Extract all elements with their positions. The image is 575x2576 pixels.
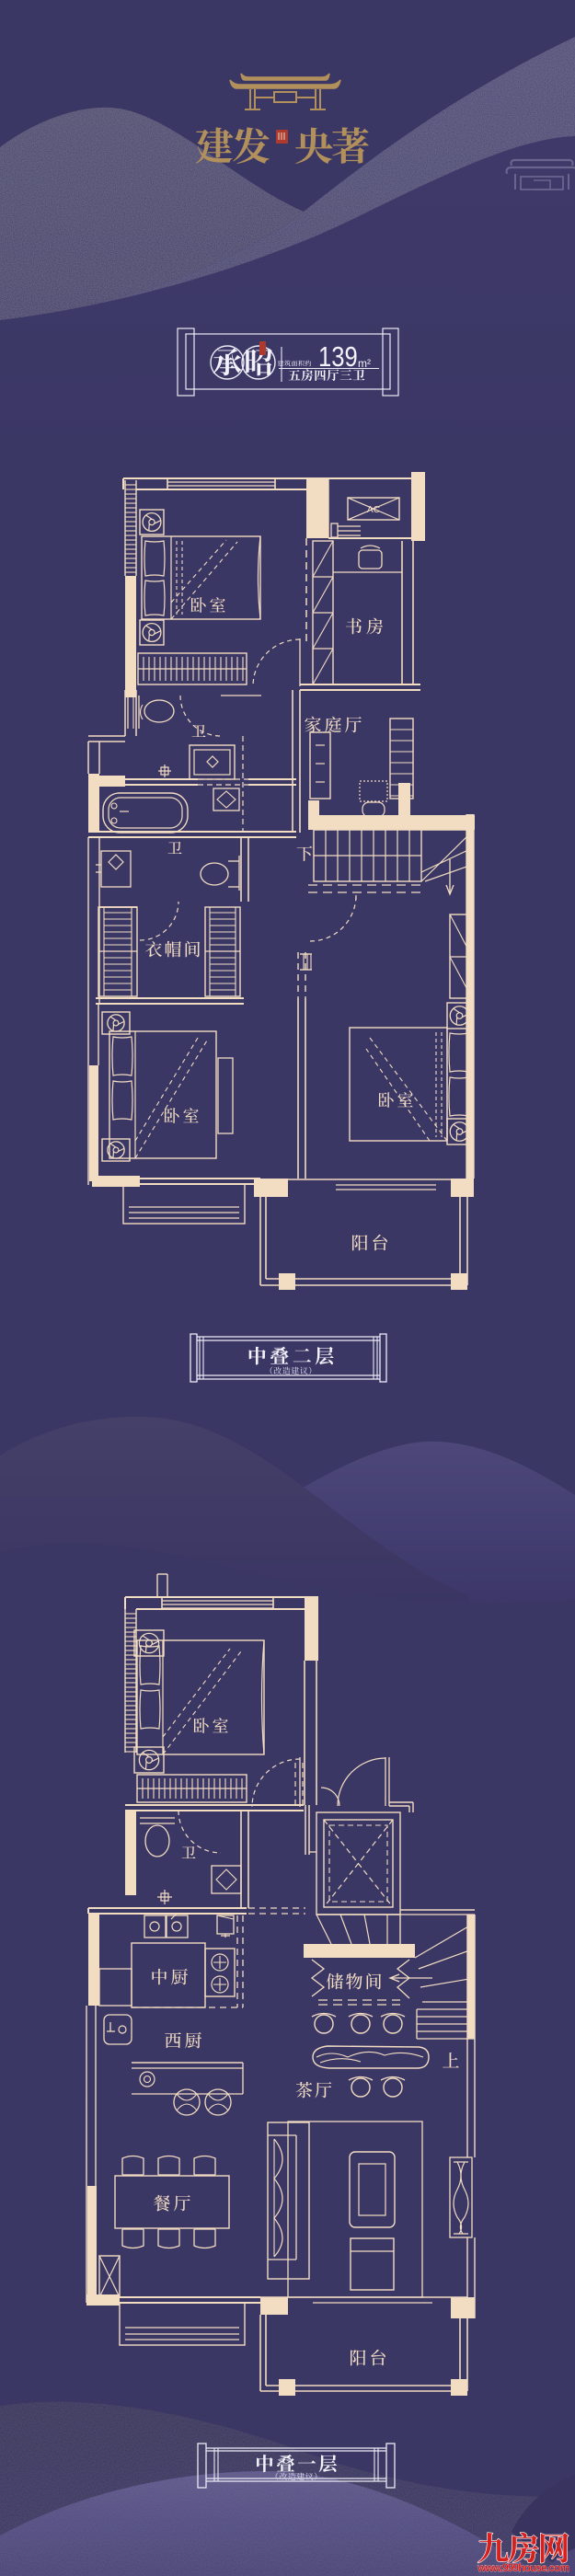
svg-text:139: 139 — [318, 341, 358, 373]
svg-text:www.999house.com: www.999house.com — [477, 2561, 569, 2574]
svg-text:AC: AC — [367, 505, 380, 515]
svg-text:m²: m² — [358, 357, 371, 370]
